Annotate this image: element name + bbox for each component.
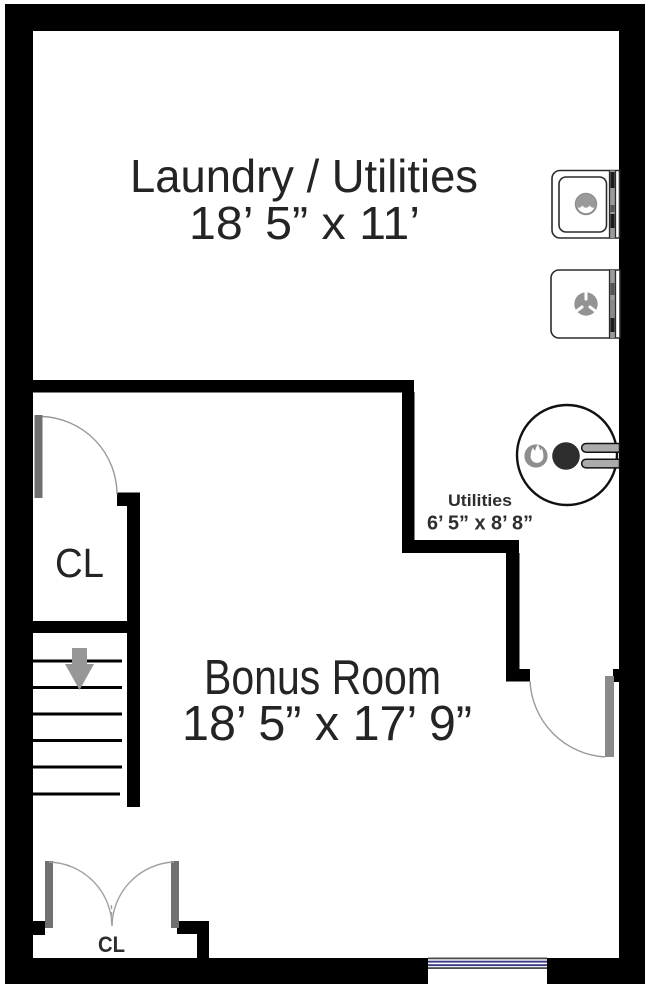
svg-text:Utilities: Utilities	[448, 491, 512, 510]
svg-text:18’ 5” x 17’ 9”: 18’ 5” x 17’ 9”	[182, 697, 472, 751]
svg-text:6’ 5” x 8’ 8”: 6’ 5” x 8’ 8”	[427, 513, 533, 535]
svg-text:CL: CL	[55, 540, 104, 586]
svg-text:Laundry / Utilities: Laundry / Utilities	[130, 150, 478, 202]
svg-text:CL: CL	[98, 932, 125, 957]
svg-text:18’ 5” x 11’: 18’ 5” x 11’	[189, 197, 420, 249]
